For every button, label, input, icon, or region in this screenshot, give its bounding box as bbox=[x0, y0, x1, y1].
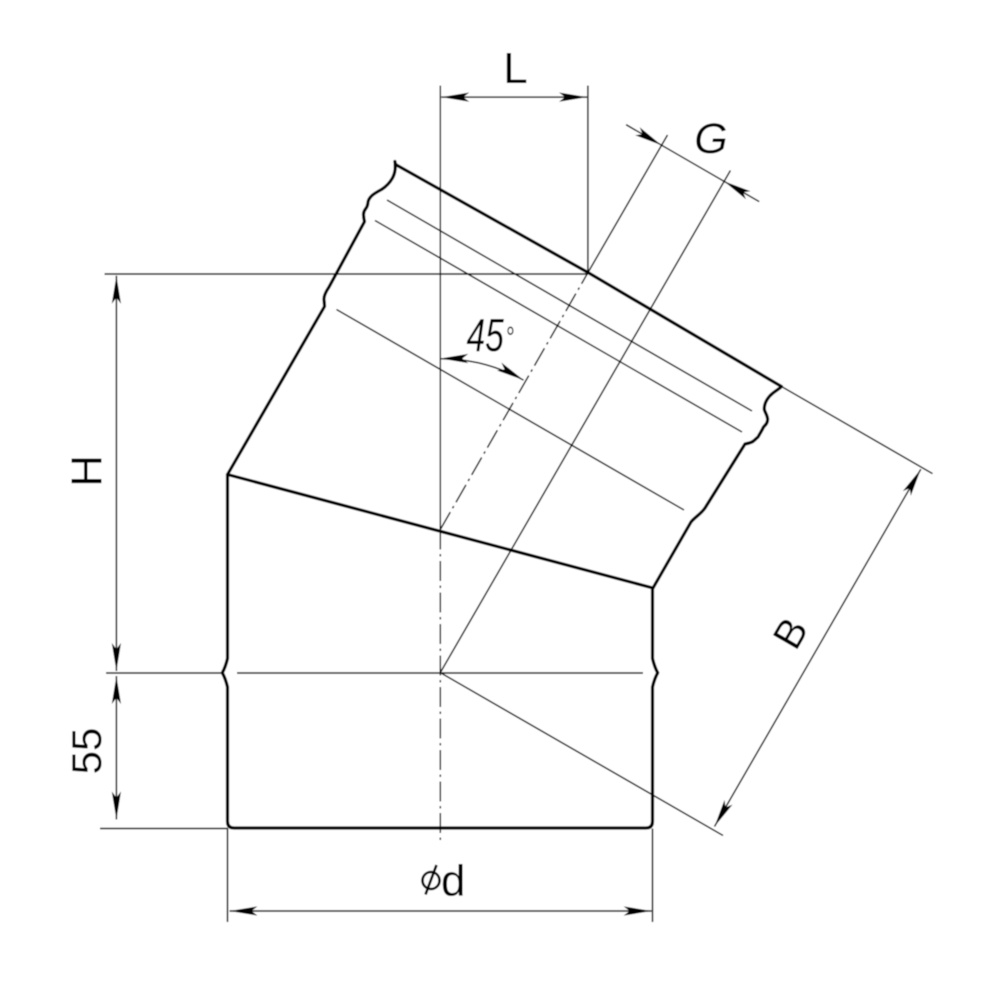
svg-text:L: L bbox=[503, 44, 527, 93]
svg-text:55: 55 bbox=[63, 728, 110, 775]
svg-text:d: d bbox=[441, 857, 465, 906]
svg-text:G: G bbox=[694, 115, 727, 163]
svg-text:H: H bbox=[63, 455, 112, 487]
